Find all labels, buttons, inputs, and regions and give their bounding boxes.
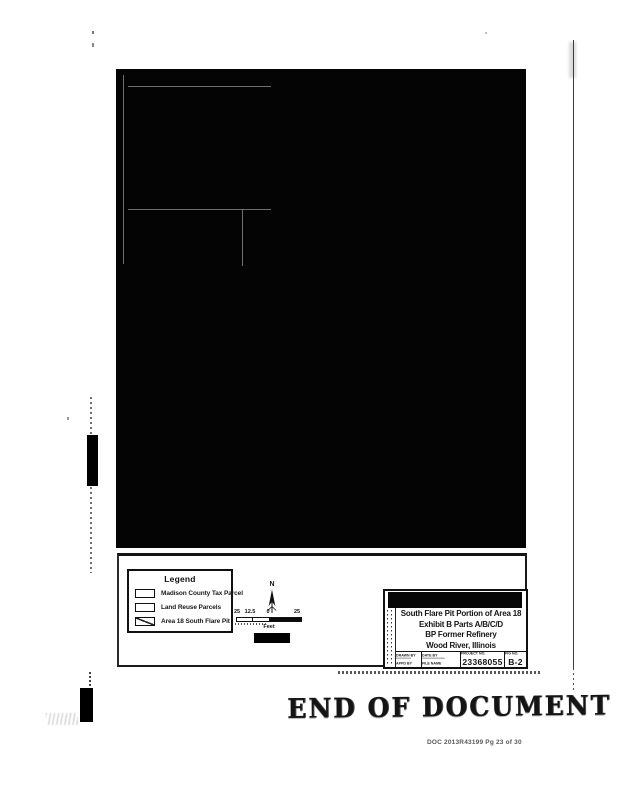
parcel-boundary-line xyxy=(123,75,124,264)
doc-page-reference: DOC 2013R43199 Pg 23 of 30 xyxy=(427,739,522,746)
left-redaction-bar xyxy=(87,435,98,486)
titleblock-body: South Flare Pit Portion of Area 18 Exhib… xyxy=(385,608,526,667)
legend-item: Land Reuse Parcels xyxy=(135,602,231,612)
project-number-value: 23368055 xyxy=(461,657,504,667)
legend-item-label: Land Reuse Parcels xyxy=(161,604,221,611)
map-redacted-area xyxy=(116,69,526,548)
scanned-document-page: Legend Madison County Tax Parcel Land Re… xyxy=(0,0,618,800)
north-label: N xyxy=(261,581,283,589)
scan-speck xyxy=(92,31,94,34)
parcel-swatch-icon xyxy=(135,603,155,612)
project-number-field: PROJECT NO. 23368055 xyxy=(461,652,505,668)
scan-artifact-line xyxy=(573,40,574,668)
end-of-document-stamp: END OF DOCUMENT xyxy=(287,690,577,734)
scan-speck xyxy=(89,672,91,686)
figure-footer-panel: Legend Madison County Tax Parcel Land Re… xyxy=(117,553,527,667)
project-number-label: PROJECT NO. xyxy=(461,652,487,654)
scan-speck xyxy=(485,32,487,34)
parcel-boundary-line xyxy=(242,209,243,266)
drafting-field-label: DATE BY xyxy=(422,654,445,659)
title-block: South Flare Pit Portion of Area 18 Exhib… xyxy=(383,589,528,669)
legend-item-label: Area 18 South Flare Pit xyxy=(161,618,230,625)
titleblock-fields-row: DRAWN BY APPD BY DATE BY FILE NAME PROJE… xyxy=(396,651,526,668)
scan-artifact-line xyxy=(573,668,574,692)
drafting-field-label: FILE NAME xyxy=(422,662,445,667)
figure-number-field: FIG NO. B-2 xyxy=(505,652,526,668)
scale-segment xyxy=(253,618,270,621)
titleblock-redaction-bar xyxy=(388,592,522,608)
scale-ticks: 25 12.5 0 25 xyxy=(233,609,307,617)
left-redaction-bar xyxy=(80,688,93,722)
titleblock-main: South Flare Pit Portion of Area 18 Exhib… xyxy=(396,608,526,667)
parcel-swatch-icon xyxy=(135,589,155,598)
scale-bar-graphic xyxy=(236,617,302,622)
figure-title-line: Wood River, Illinois xyxy=(396,641,526,652)
legend-item: Area 18 South Flare Pit xyxy=(135,616,231,626)
scan-smudge xyxy=(46,713,78,725)
figure-title-line: Exhibit B Parts A/B/C/D xyxy=(396,620,526,631)
legend-title: Legend xyxy=(129,574,231,584)
parcel-boundary-line xyxy=(128,209,271,210)
scale-segment xyxy=(237,618,253,621)
scale-tick-label: 25 xyxy=(294,609,300,615)
hatched-swatch-icon xyxy=(135,617,155,626)
figure-number-value: B-2 xyxy=(505,657,526,667)
scan-speck xyxy=(92,43,94,47)
legend-item: Madison County Tax Parcel xyxy=(135,588,231,598)
figure-title-line: BP Former Refinery xyxy=(396,630,526,641)
scale-tick-label: 0 xyxy=(266,609,269,615)
scale-microtext xyxy=(235,623,267,625)
figure-title: South Flare Pit Portion of Area 18 Exhib… xyxy=(396,608,526,651)
drafting-field: DATE BY FILE NAME xyxy=(422,652,461,668)
scale-segment xyxy=(270,618,301,621)
scan-speck xyxy=(67,417,69,420)
figure-number-label: FIG NO. xyxy=(505,652,518,654)
drafting-field: DRAWN BY APPD BY xyxy=(396,652,422,668)
titleblock-side-microtext xyxy=(385,608,396,667)
drafting-field-label: APPD BY xyxy=(396,662,411,667)
legend: Legend Madison County Tax Parcel Land Re… xyxy=(127,569,233,633)
scale-tick-label: 12.5 xyxy=(245,609,256,615)
small-redaction-bar xyxy=(254,633,290,643)
drafting-field-label: DRAWN BY xyxy=(396,654,411,659)
scale-tick-label: 25 xyxy=(234,609,240,615)
scale-bar: 25 12.5 0 25 Feet xyxy=(233,609,307,630)
parcel-boundary-line xyxy=(128,86,271,87)
figure-title-line: South Flare Pit Portion of Area 18 xyxy=(396,609,526,620)
filepath-microtext xyxy=(338,671,540,674)
legend-item-label: Madison County Tax Parcel xyxy=(161,590,243,597)
